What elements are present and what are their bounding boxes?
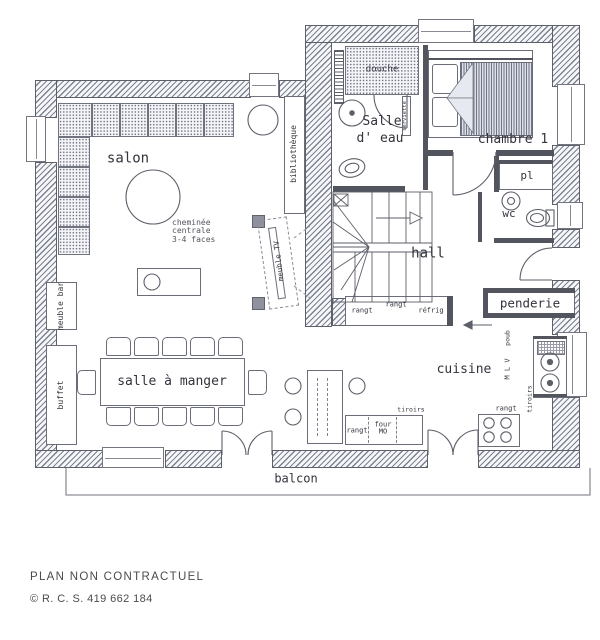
- sofa-segment: [204, 103, 234, 137]
- label-penderie: penderie: [500, 296, 560, 309]
- fireplace-hearth: [137, 268, 201, 296]
- wall-interior-vertical: [305, 25, 332, 327]
- room-label-cuisine: cuisine: [437, 363, 492, 377]
- label-rangt: rangt: [351, 307, 372, 314]
- wall-chambre-bottom-left: [423, 150, 453, 156]
- window-right-chambre: [557, 84, 585, 145]
- wall-top-upper-left: [305, 25, 420, 43]
- bar-stool: [349, 378, 365, 394]
- copyright-text: © R. C. S. 419 662 184: [30, 593, 153, 605]
- room-label-salle-eau-2: d' eau: [357, 132, 404, 146]
- wc-basin-drain: [508, 198, 515, 205]
- room-label-salle-eau-1: Salle: [362, 115, 401, 129]
- room-label-salon: salon: [107, 152, 149, 167]
- washbasin-drain: [350, 111, 354, 115]
- sink-drainer: [537, 341, 565, 355]
- bar-counter-line: [317, 378, 318, 436]
- bed-pillow: [432, 64, 458, 94]
- label-wc: wc: [502, 208, 515, 220]
- wall-wc-left: [478, 192, 482, 242]
- label-poub: poub: [505, 330, 512, 346]
- dining-chair: [134, 337, 159, 356]
- window-left-salon: [26, 116, 46, 162]
- wall-top-salon: [35, 80, 251, 98]
- cooktop: [478, 414, 520, 447]
- toilet-tank: [546, 210, 554, 226]
- label-rangt: rangt: [495, 405, 516, 412]
- bed-pillow: [432, 97, 458, 127]
- dining-chair: [218, 337, 243, 356]
- dining-chair: [248, 370, 267, 395]
- dining-chair: [134, 407, 159, 426]
- wall-right-3: [552, 229, 580, 248]
- dining-chair: [106, 407, 131, 426]
- sink-unit-edge: [533, 336, 567, 339]
- label-tiroirs: tiroirs: [397, 407, 424, 414]
- counter-divider: [396, 417, 397, 443]
- door-entrance: [520, 248, 552, 280]
- wall-left-1: [35, 80, 57, 118]
- french-door-dining: [222, 431, 272, 455]
- balcony-outline: [66, 468, 590, 495]
- understairs-cabinet-edge: [447, 296, 453, 326]
- wardrobe-bottom-edge: [483, 313, 575, 318]
- toilet: [527, 210, 550, 227]
- label-pl: pl: [520, 170, 533, 182]
- sofa-segment: [92, 103, 120, 137]
- window-top-salon: [249, 73, 279, 97]
- sofa-segment: [148, 103, 176, 137]
- label-meuble-bar: meuble bar: [57, 282, 65, 330]
- french-door-kitchen: [428, 430, 478, 455]
- window-top-chambre: [418, 19, 474, 43]
- floor-plan-sheet: salon cheminée centrale 3-4 faces biblio…: [0, 0, 600, 640]
- window-right-wc: [557, 202, 583, 229]
- label-four-mo: four MO: [375, 422, 392, 437]
- dining-chair: [218, 407, 243, 426]
- counter-divider: [368, 417, 369, 443]
- label-cheminee: cheminée centrale 3-4 faces: [172, 219, 215, 244]
- bed-duvet: [460, 62, 533, 136]
- label-tiroirs: tiroirs: [527, 385, 534, 412]
- dining-chair: [190, 337, 215, 356]
- bar-stool: [285, 409, 301, 425]
- bar-counter-line: [327, 378, 328, 436]
- dining-chair: [77, 370, 96, 395]
- label-buffet: buffet: [57, 381, 65, 410]
- salon-round-table: [126, 170, 180, 224]
- sofa-segment: [58, 167, 90, 197]
- label-rangt: rangt: [346, 427, 367, 434]
- dining-chair: [162, 407, 187, 426]
- label-serviette: serviette: [403, 101, 409, 131]
- label-balcon: balcon: [274, 473, 317, 486]
- sofa-segment: [58, 103, 92, 137]
- wall-right-1: [552, 25, 580, 87]
- disclaimer-text: PLAN NON CONTRACTUEL: [30, 571, 204, 583]
- bidet-bowl: [344, 162, 360, 174]
- dining-chair: [106, 337, 131, 356]
- wall-bottom-3: [272, 450, 428, 468]
- wall-bottom-4: [478, 450, 580, 468]
- bar-stool: [285, 378, 301, 394]
- label-refrig: réfrig: [418, 307, 443, 314]
- bed-headboard: [428, 58, 533, 60]
- bar-counter: [307, 370, 343, 444]
- door-chambre: [453, 152, 496, 195]
- room-label-hall: hall: [411, 247, 445, 262]
- closet-pl-front: [499, 160, 553, 164]
- sofa-segment: [176, 103, 204, 137]
- sofa-segment: [58, 197, 90, 227]
- label-mlv: M L V: [504, 358, 511, 379]
- wall-bottom-2: [165, 450, 222, 468]
- window-bottom-dining: [102, 447, 164, 468]
- speaker-box: [252, 297, 265, 310]
- sofa-segment: [58, 137, 90, 167]
- wall-right-2: [552, 145, 580, 205]
- towel-rail: [334, 50, 344, 104]
- toilet-bowl: [531, 214, 544, 223]
- side-table: [248, 105, 278, 135]
- dining-chair: [190, 407, 215, 426]
- label-douche: douche: [366, 65, 399, 74]
- entry-arrow: [464, 321, 492, 329]
- wall-chambre-bottom-right: [496, 150, 554, 156]
- wall-salle-eau-bottom: [333, 186, 405, 192]
- room-label-chambre: chambre 1: [478, 133, 548, 147]
- wardrobe-left-edge: [483, 288, 488, 318]
- room-label-salle-a-manger: salle à manger: [117, 375, 227, 389]
- bidet: [337, 156, 367, 180]
- stairs-direction-arrow: [410, 212, 422, 224]
- wall-bottom-1: [35, 450, 109, 468]
- sofa-segment: [58, 227, 90, 255]
- sink-unit-edge: [533, 394, 567, 397]
- label-rangt: rangt: [385, 301, 406, 308]
- sofa-segment: [120, 103, 148, 137]
- label-bibliotheque: bibliothèque: [290, 125, 298, 183]
- wardrobe-top-edge: [483, 288, 575, 293]
- wall-wc-bottom: [494, 238, 554, 243]
- dining-chair: [162, 337, 187, 356]
